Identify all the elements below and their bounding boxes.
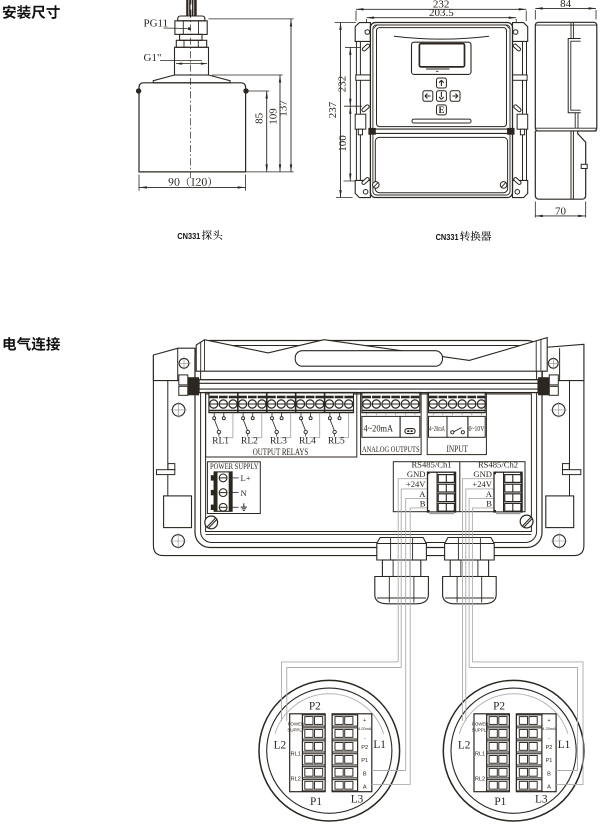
svg-text:237: 237 — [327, 101, 339, 118]
svg-text:GND: GND — [407, 469, 426, 479]
svg-text:B: B — [547, 771, 551, 777]
svg-text:P1: P1 — [361, 758, 368, 764]
svg-text:0~10V: 0~10V — [469, 425, 485, 433]
svg-text:RL2: RL2 — [475, 776, 485, 782]
svg-text:P2: P2 — [493, 700, 505, 712]
svg-text:L2: L2 — [458, 739, 471, 751]
svg-text:SUPPLY: SUPPLY — [287, 727, 304, 732]
svg-text:RL2: RL2 — [291, 776, 301, 782]
svg-text:POWER: POWER — [472, 722, 489, 727]
svg-text:P1: P1 — [494, 796, 506, 808]
svg-text:POWER: POWER — [288, 722, 305, 727]
svg-text:84: 84 — [560, 0, 572, 10]
svg-text:B: B — [420, 499, 426, 509]
svg-text:4~20mA: 4~20mA — [429, 426, 445, 433]
svg-text:RL1: RL1 — [291, 752, 301, 758]
svg-text:4-20mA: 4-20mA — [542, 727, 556, 731]
svg-text:RL2: RL2 — [241, 436, 258, 446]
svg-text:-: - — [364, 736, 366, 742]
svg-text:P1: P1 — [310, 796, 322, 808]
svg-text:4-20mA: 4-20mA — [358, 727, 372, 731]
svg-text:E: E — [438, 105, 444, 115]
svg-text:232: 232 — [337, 76, 349, 93]
svg-text:P2: P2 — [361, 745, 368, 751]
svg-text:85: 85 — [253, 112, 265, 124]
svg-text:L2: L2 — [274, 739, 287, 751]
svg-text:A: A — [419, 489, 426, 499]
svg-text:137: 137 — [278, 100, 290, 117]
svg-text:+24V: +24V — [406, 479, 426, 489]
svg-text:P2: P2 — [309, 700, 321, 712]
svg-text:100: 100 — [337, 135, 349, 152]
svg-text:OUTPUT RELAYS: OUTPUT RELAYS — [253, 448, 309, 458]
svg-text:B: B — [486, 499, 492, 509]
svg-text:RS485/Ch2: RS485/Ch2 — [478, 460, 518, 470]
svg-text:RL1: RL1 — [475, 752, 485, 758]
svg-text:CN331: CN331 — [436, 232, 459, 242]
svg-text:+: + — [547, 718, 550, 724]
svg-text:P1: P1 — [546, 758, 553, 764]
svg-text:RL1: RL1 — [212, 436, 229, 446]
svg-text:A: A — [486, 489, 493, 499]
svg-text:+24V: +24V — [472, 479, 492, 489]
svg-text:P2: P2 — [546, 745, 553, 751]
svg-text:GND: GND — [473, 469, 492, 479]
svg-text:A: A — [547, 784, 551, 790]
svg-text:SUPPLY: SUPPLY — [472, 727, 489, 732]
svg-text:L+: L+ — [241, 473, 251, 483]
svg-text:+: + — [363, 718, 366, 724]
svg-text:INPUT: INPUT — [446, 444, 468, 454]
svg-text:RL4: RL4 — [299, 436, 316, 446]
svg-text:L3: L3 — [351, 793, 364, 805]
svg-text:ANALOG OUTPUTS: ANALOG OUTPUTS — [362, 444, 420, 454]
svg-text:70: 70 — [555, 205, 567, 217]
svg-text:L1: L1 — [558, 739, 571, 751]
svg-text:-: - — [548, 736, 550, 742]
svg-text:CN331: CN331 — [177, 231, 200, 241]
svg-text:B: B — [363, 771, 367, 777]
svg-text:POWER SUPPLY: POWER SUPPLY — [210, 462, 259, 471]
svg-text:RL5: RL5 — [328, 436, 345, 446]
svg-text:RS485/Ch1: RS485/Ch1 — [411, 460, 451, 470]
svg-text:G1": G1" — [144, 52, 162, 64]
svg-text:4~20mA: 4~20mA — [364, 424, 394, 434]
svg-text:L1: L1 — [373, 739, 386, 751]
svg-text:A: A — [363, 784, 367, 790]
svg-text:203.5: 203.5 — [429, 7, 454, 19]
svg-text:L3: L3 — [535, 793, 548, 805]
svg-text:RL3: RL3 — [270, 436, 287, 446]
svg-text:N: N — [241, 488, 247, 498]
